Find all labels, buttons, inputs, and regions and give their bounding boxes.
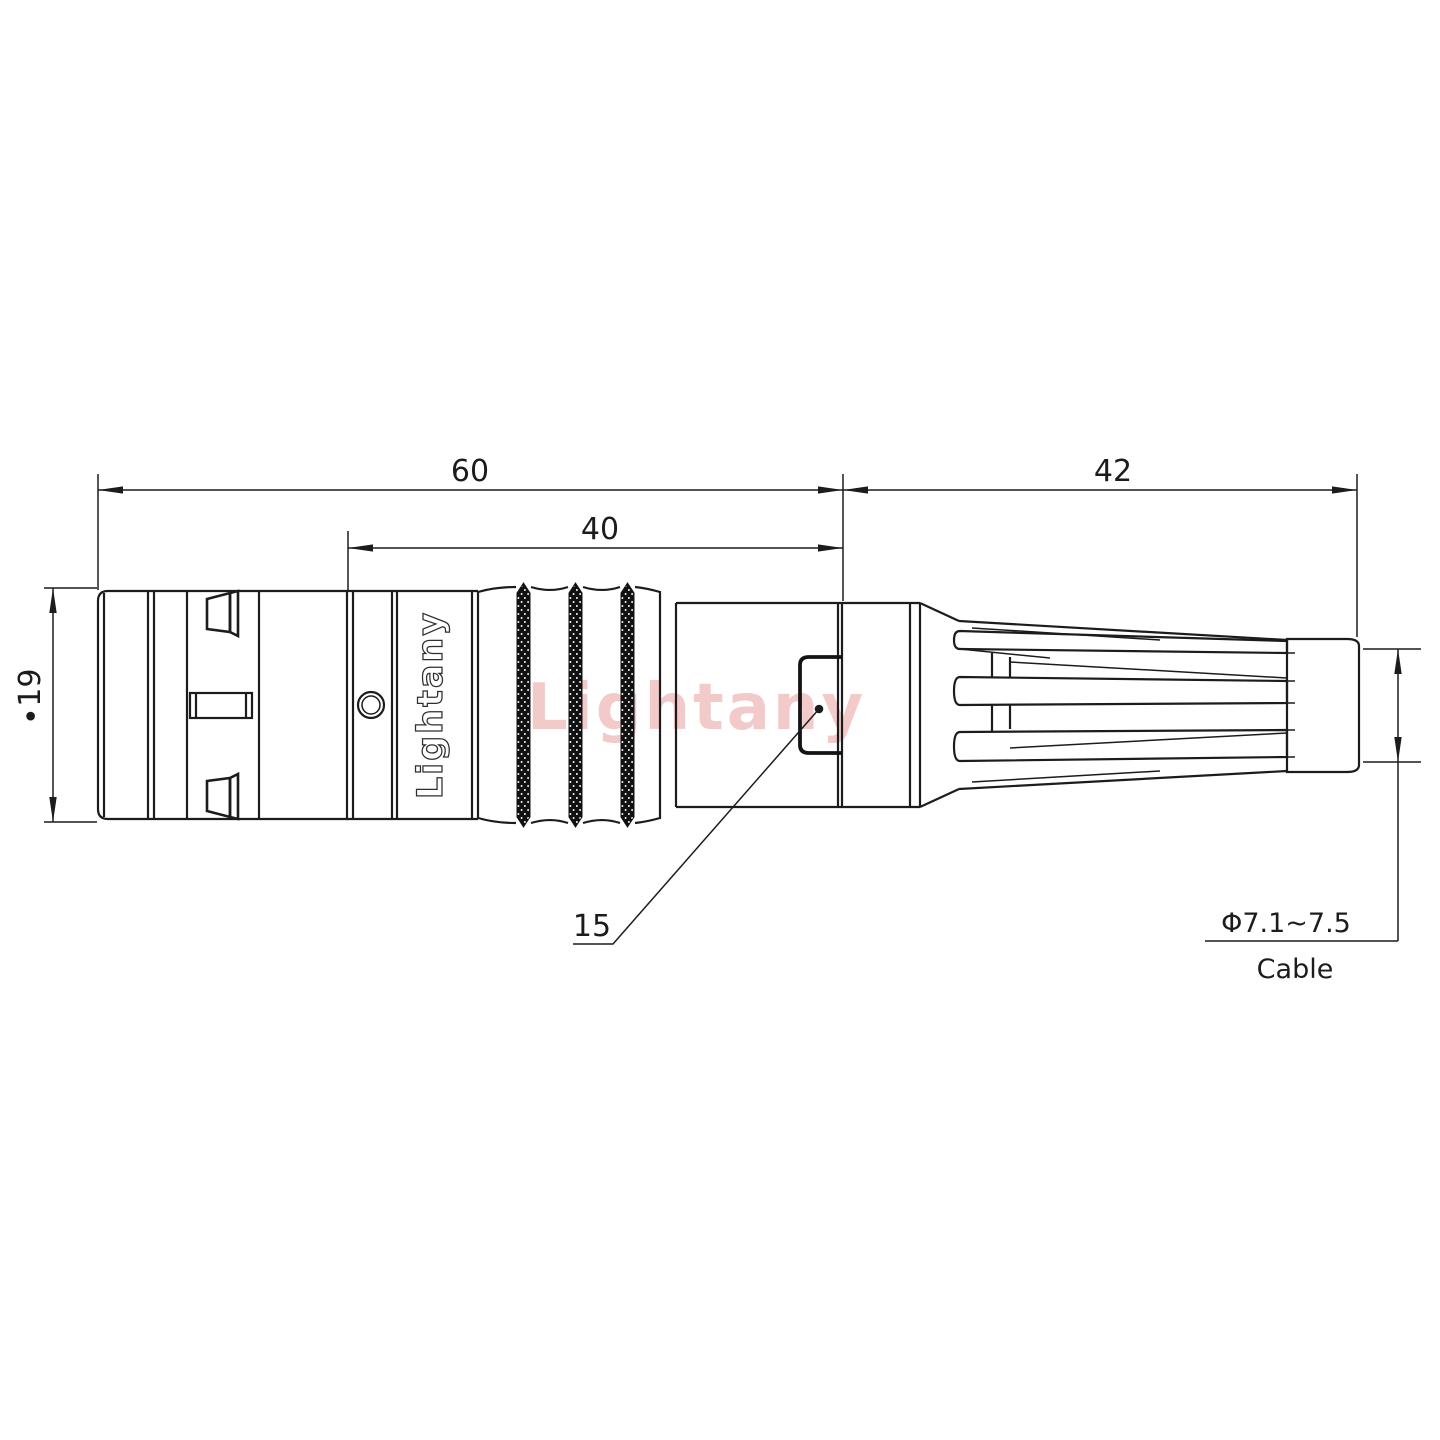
arrowhead-left-icon — [98, 486, 123, 493]
knurl-ring — [517, 583, 530, 827]
connector-drawing: Lightany ∙19 60 42 40 — [0, 0, 1440, 1440]
length-60-label: 60 — [451, 454, 489, 489]
cable-text-label: Cable — [1257, 954, 1334, 985]
length-40-label: 40 — [581, 512, 619, 547]
technical-drawing-page: Lightany ∙19 60 42 40 — [0, 0, 1440, 1440]
dimension-40: 40 — [348, 512, 843, 590]
length-42-label: 42 — [1094, 454, 1132, 489]
brand-band: Lightany — [411, 591, 478, 819]
arrowhead-right-icon — [818, 544, 843, 551]
arrowhead-left-icon — [348, 544, 373, 551]
arrowhead-right-icon — [818, 486, 843, 493]
cable-diameter-label: Φ7.1~7.5 — [1221, 908, 1351, 939]
arrowhead-up-icon — [49, 588, 56, 613]
dimension-cable: Φ7.1~7.5 Cable — [1205, 649, 1421, 985]
diameter-19-label: ∙19 — [13, 669, 48, 726]
arrowhead-left-icon — [843, 486, 868, 493]
arrowhead-down-icon — [1394, 737, 1401, 762]
bayonet-key-top — [207, 591, 238, 636]
arrowhead-up-icon — [1394, 649, 1401, 674]
arrowhead-down-icon — [49, 797, 56, 822]
cable-collar — [1287, 639, 1359, 772]
brand-engraving-text: Lightany — [411, 611, 451, 799]
front-shell — [98, 591, 347, 819]
dimension-diameter-19: ∙19 — [13, 588, 97, 822]
bayonet-key-bottom — [207, 774, 238, 819]
dimension-60: 60 — [98, 454, 843, 601]
boot-fin — [954, 631, 1287, 653]
boot-fin — [954, 730, 1287, 761]
knurl-ring — [569, 583, 582, 827]
arrowhead-right-icon — [1332, 486, 1357, 493]
strain-relief-boot — [954, 621, 1287, 789]
boot-fin — [954, 677, 1287, 705]
knurl-ring — [621, 583, 634, 827]
shell-slot — [190, 693, 252, 718]
window-15-label: 15 — [573, 909, 611, 944]
